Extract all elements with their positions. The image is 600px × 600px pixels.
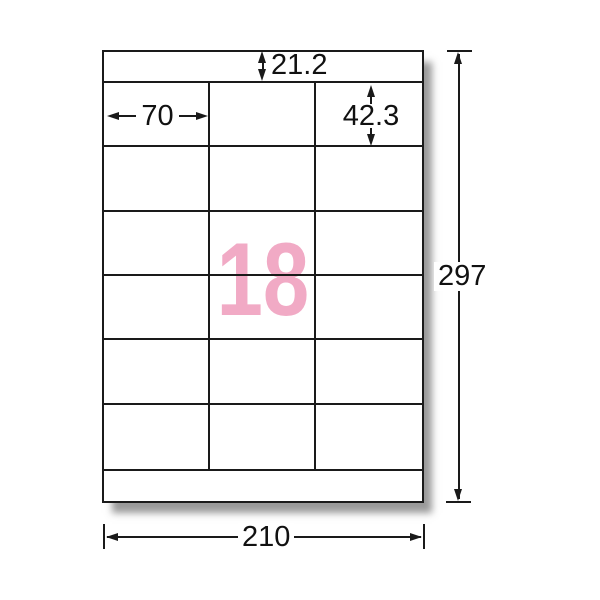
label-cell xyxy=(316,405,422,469)
label-cell xyxy=(316,147,422,211)
label-cell xyxy=(316,83,422,147)
label-cell xyxy=(210,340,316,404)
dim-sheet-width-arrow-left-icon xyxy=(106,533,118,541)
dim-sheet-height-arrow-up-icon xyxy=(454,52,462,64)
dim-top-margin-label: 21.2 xyxy=(271,51,327,80)
label-grid xyxy=(104,83,422,469)
label-cell xyxy=(316,212,422,276)
label-cell xyxy=(104,147,210,211)
label-cell xyxy=(210,212,316,276)
dim-sheet-width-arrow-right-icon xyxy=(410,533,422,541)
label-cell xyxy=(104,405,210,469)
dim-top-margin-arrow-down-icon xyxy=(258,69,266,81)
label-cell xyxy=(210,405,316,469)
label-cell xyxy=(104,340,210,404)
label-cell xyxy=(210,276,316,340)
paper-sheet: 18 xyxy=(102,50,424,503)
dim-sheet-width-label: 210 xyxy=(238,523,294,552)
label-cell xyxy=(316,340,422,404)
dim-sheet-height-tick-bottom xyxy=(446,501,471,503)
dim-sheet-width-tick-left xyxy=(103,524,105,549)
label-cell xyxy=(210,147,316,211)
dim-sheet-width-tick-right xyxy=(423,524,425,549)
dim-sheet-height-label: 297 xyxy=(434,262,490,291)
label-cell xyxy=(210,83,316,147)
label-cell xyxy=(104,212,210,276)
label-cell xyxy=(316,276,422,340)
dim-sheet-height-arrow-down-icon xyxy=(454,489,462,501)
label-cell xyxy=(104,83,210,147)
label-sheet-diagram: 18 21.2 70 42.3 297 xyxy=(0,0,600,600)
label-cell xyxy=(104,276,210,340)
